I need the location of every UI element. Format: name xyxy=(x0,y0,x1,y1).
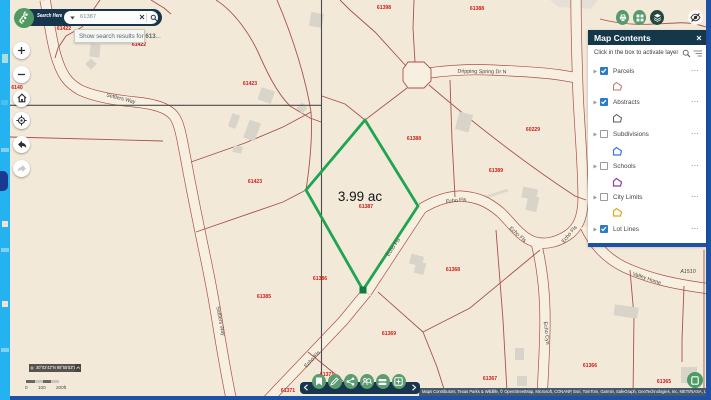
svg-text:61368: 61368 xyxy=(446,267,460,273)
svg-text:Dripping Spring Dr N: Dripping Spring Dr N xyxy=(457,69,506,76)
svg-text:61366: 61366 xyxy=(583,363,597,369)
svg-text:61389: 61389 xyxy=(489,168,503,174)
svg-text:61423: 61423 xyxy=(243,81,257,87)
svg-text:61423: 61423 xyxy=(248,179,262,185)
svg-text:61367: 61367 xyxy=(483,376,497,382)
svg-text:61365: 61365 xyxy=(657,379,671,385)
svg-text:61422: 61422 xyxy=(57,26,71,32)
svg-text:A1510: A1510 xyxy=(679,269,695,275)
svg-text:3.99 ac: 3.99 ac xyxy=(338,189,383,204)
svg-text:61385: 61385 xyxy=(257,294,271,300)
svg-text:61388: 61388 xyxy=(470,6,484,12)
svg-text:61371: 61371 xyxy=(281,388,295,394)
svg-text:60229: 60229 xyxy=(526,127,540,133)
svg-text:61369: 61369 xyxy=(382,331,396,337)
svg-text:61398: 61398 xyxy=(377,5,391,11)
svg-text:61387: 61387 xyxy=(359,204,373,210)
svg-text:61386: 61386 xyxy=(313,276,327,282)
svg-text:61388: 61388 xyxy=(407,136,421,142)
